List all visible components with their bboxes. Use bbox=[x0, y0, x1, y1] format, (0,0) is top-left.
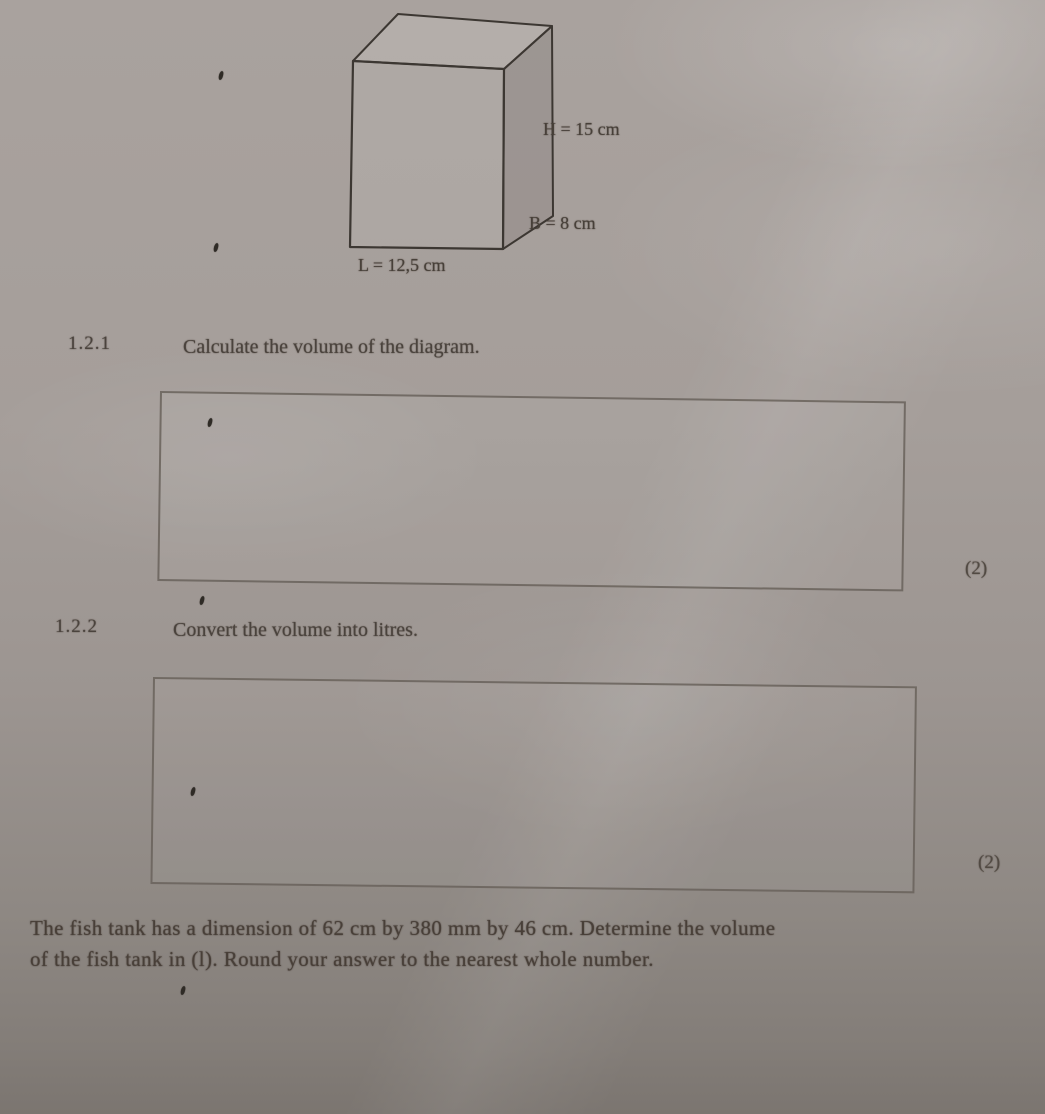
marks-label-122: (2) bbox=[978, 852, 1000, 874]
answer-box-121 bbox=[157, 391, 906, 591]
question-text-122: Convert the volume into litres. bbox=[173, 619, 418, 642]
marks-label-121: (2) bbox=[965, 558, 987, 580]
length-dimension-label: L = 12,5 cm bbox=[358, 255, 445, 276]
height-dimension-label: H = 15 cm bbox=[543, 119, 620, 140]
ink-speck bbox=[180, 986, 186, 996]
answer-box-122 bbox=[150, 677, 916, 893]
cuboid-front-face bbox=[350, 61, 504, 249]
question-number-121: 1.2.1 bbox=[68, 333, 111, 355]
breadth-dimension-label: B = 8 cm bbox=[529, 213, 596, 234]
ink-speck bbox=[213, 243, 219, 253]
fish-tank-question-line-1: The fish tank has a dimension of 62 cm b… bbox=[30, 916, 775, 941]
cuboid-diagram bbox=[330, 0, 575, 290]
question-text-121: Calculate the volume of the diagram. bbox=[183, 336, 480, 359]
worksheet-page: H = 15 cm B = 8 cm L = 12,5 cm 1.2.1 Cal… bbox=[0, 0, 1045, 1114]
question-number-122: 1.2.2 bbox=[55, 616, 98, 638]
fish-tank-question-line-2: of the fish tank in (l). Round your answ… bbox=[30, 947, 654, 972]
ink-speck bbox=[218, 71, 224, 81]
ink-speck bbox=[199, 596, 205, 606]
